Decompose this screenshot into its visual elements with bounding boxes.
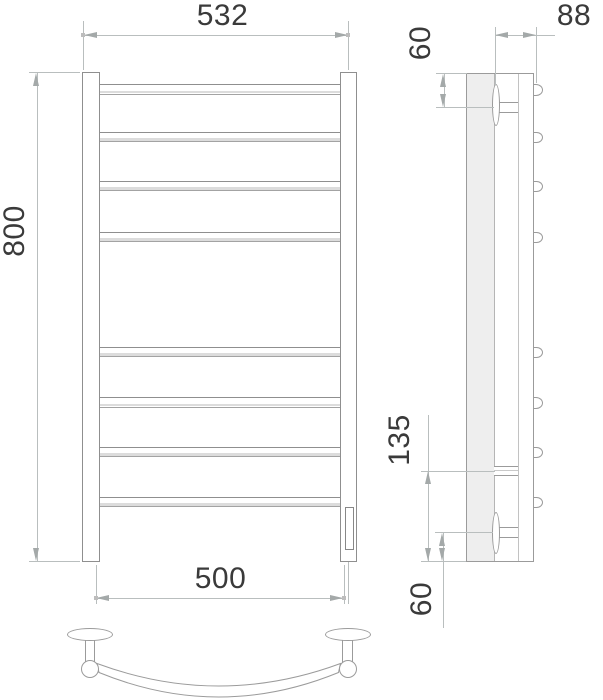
rung: [100, 497, 340, 508]
dim-135-label: 135: [385, 408, 415, 472]
rung: [100, 132, 340, 143]
right-post: [340, 72, 358, 563]
rung-end: [534, 497, 543, 509]
rung: [100, 84, 340, 95]
rung: [100, 447, 340, 458]
heating-element-box: [345, 507, 355, 550]
right-flange: [325, 628, 371, 641]
rung: [100, 397, 340, 408]
rung-end: [534, 232, 543, 244]
dim-800-label: 800: [0, 199, 30, 263]
drawing-canvas: 532 800 500 88 60: [0, 0, 603, 700]
left-flange: [67, 628, 113, 641]
mid-bracket: [494, 466, 518, 476]
bottom-wall-flange: [492, 512, 500, 554]
left-collar: [81, 660, 99, 678]
right-collar: [339, 660, 357, 678]
rung-end: [534, 347, 543, 359]
top-wall-flange: [492, 84, 500, 126]
wall-section: [467, 74, 495, 561]
rung: [100, 347, 340, 358]
dim-60-bottom-label: 60: [407, 577, 437, 621]
rung: [100, 232, 340, 243]
rung: [100, 181, 340, 192]
rung-end: [534, 132, 543, 144]
dim-60-top-label: 60: [406, 21, 436, 65]
rung-end: [534, 397, 543, 409]
top-bracket-stem: [499, 102, 518, 113]
dim-500-label: 500: [158, 564, 283, 594]
rung-end: [534, 84, 543, 96]
rung-end: [534, 181, 543, 193]
power-cable-line: [348, 562, 349, 604]
dim-532-label: 532: [160, 1, 285, 31]
rung-end: [534, 447, 543, 459]
bottom-bracket-stem: [499, 527, 518, 538]
dim-88-label: 88: [552, 1, 596, 31]
left-post: [82, 72, 100, 563]
tube-edge-line: [518, 74, 519, 561]
